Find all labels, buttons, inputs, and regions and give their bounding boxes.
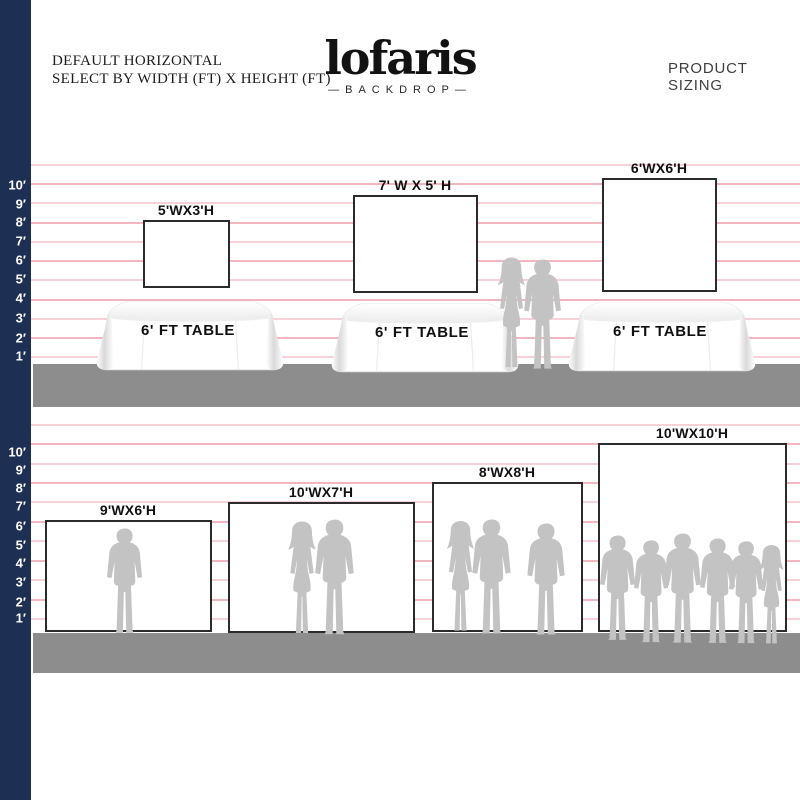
scale-label: 3′ — [0, 575, 26, 590]
scale-label: 9′ — [0, 197, 26, 212]
scale-label: 9′ — [0, 463, 26, 478]
scale-label: 6′ — [0, 519, 26, 534]
backdrop-size-label: 10'WX10'H — [656, 425, 728, 441]
scale-label: 3′ — [0, 311, 26, 326]
table-label: 6' FT TABLE — [375, 324, 469, 341]
scale-label: 10′ — [0, 445, 26, 460]
left-scale-bar — [0, 0, 31, 800]
backdrop-size-label: 6'WX6'H — [631, 160, 687, 176]
scale-label: 2′ — [0, 595, 26, 610]
scale-label: 2′ — [0, 331, 26, 346]
table-label: 6' FT TABLE — [141, 322, 235, 339]
man-silhouette — [313, 518, 358, 641]
scale-label: 1′ — [0, 349, 26, 364]
scale-label: 10′ — [0, 178, 26, 193]
scale-label: 1′ — [0, 611, 26, 626]
backdrop-size-label: 8'WX8'H — [479, 464, 535, 480]
scale-label: 7′ — [0, 499, 26, 514]
scale-label: 8′ — [0, 215, 26, 230]
man-silhouette — [470, 518, 515, 640]
scale-label: 4′ — [0, 556, 26, 571]
backdrop-6x6 — [602, 178, 717, 292]
backdrop-size-label: 9'WX6'H — [100, 502, 156, 518]
man-silhouette — [522, 258, 565, 375]
backdrop-size-label: 5'WX3'H — [158, 202, 214, 218]
backdrop-size-label: 10'WX7'H — [289, 484, 353, 500]
scale-label: 7′ — [0, 234, 26, 249]
scale-label: 8′ — [0, 481, 26, 496]
woman-silhouette — [754, 544, 789, 650]
backdrop-7x5 — [353, 195, 478, 293]
page-title: PRODUCT SIZING — [668, 60, 800, 94]
man-silhouette — [105, 527, 146, 639]
scale-label: 5′ — [0, 272, 26, 287]
backdrop-size-label: 7' W X 5' H — [379, 177, 452, 193]
backdrop-5x3 — [143, 220, 230, 288]
scale-label: 6′ — [0, 253, 26, 268]
scale-label: 5′ — [0, 538, 26, 553]
product-sizing-page: DEFAULT HORIZONTAL SELECT BY WIDTH (FT) … — [0, 0, 800, 800]
man-silhouette — [525, 522, 569, 641]
scale-label: 4′ — [0, 291, 26, 306]
table-label: 6' FT TABLE — [613, 323, 707, 340]
